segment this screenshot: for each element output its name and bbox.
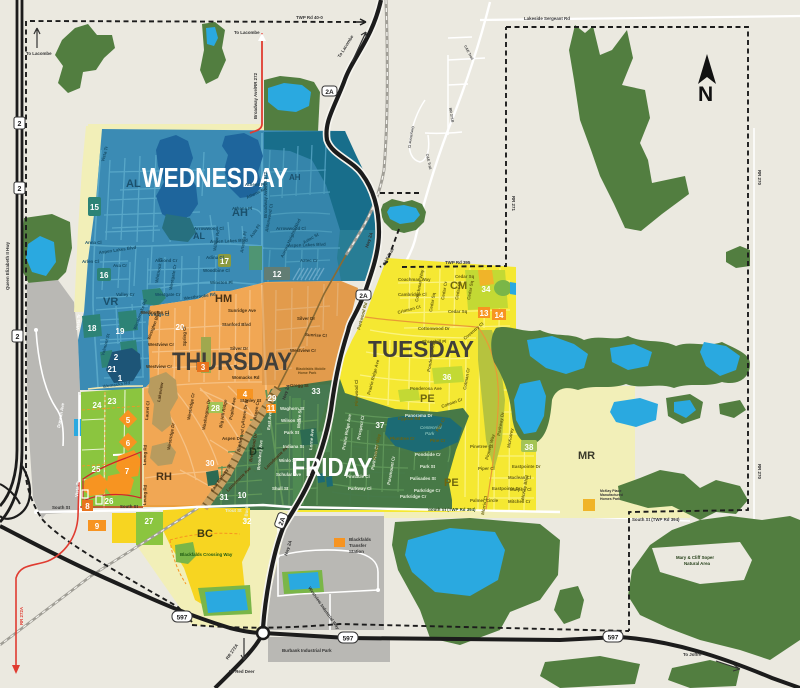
svg-text:597: 597: [177, 615, 188, 622]
svg-text:Stanford Blvd: Stanford Blvd: [222, 322, 251, 327]
svg-text:PE: PE: [444, 477, 459, 489]
svg-text:Arlen Cl: Arlen Cl: [82, 259, 99, 264]
svg-text:To Joffre: To Joffre: [683, 652, 702, 657]
svg-text:Pinetree Cl: Pinetree Cl: [470, 444, 493, 449]
svg-text:AL: AL: [126, 178, 141, 190]
svg-text:Parkridge Cr: Parkridge Cr: [400, 494, 427, 499]
svg-text:Cedar Sq: Cedar Sq: [448, 309, 468, 314]
svg-text:Burbank Industrial Park: Burbank Industrial Park: [282, 648, 332, 653]
svg-text:2: 2: [18, 121, 22, 128]
svg-text:TWP Rd 40-0: TWP Rd 40-0: [296, 15, 323, 20]
svg-text:HM: HM: [215, 293, 232, 305]
svg-text:Station: Station: [349, 549, 364, 554]
svg-text:RR 270: RR 270: [757, 170, 762, 185]
svg-text:Westview Cr: Westview Cr: [146, 364, 172, 369]
svg-text:Cyprus Rd: Cyprus Rd: [398, 416, 421, 421]
svg-text:30: 30: [206, 459, 215, 468]
svg-text:Schular Ave: Schular Ave: [276, 472, 302, 477]
svg-text:PE: PE: [420, 393, 435, 405]
svg-text:TUESDAY: TUESDAY: [368, 336, 474, 362]
svg-text:AH: AH: [289, 173, 301, 182]
svg-text:Winston Pl: Winston Pl: [210, 280, 233, 285]
svg-text:Parkridge Cr: Parkridge Cr: [414, 488, 441, 493]
svg-text:Gregg St: Gregg St: [290, 383, 309, 388]
svg-text:South St: South St: [120, 504, 139, 509]
svg-text:Queen Elizabeth II Hwy: Queen Elizabeth II Hwy: [5, 241, 10, 290]
svg-text:AL: AL: [193, 231, 205, 241]
svg-text:Westview Cr: Westview Cr: [148, 342, 174, 347]
svg-text:8: 8: [85, 502, 90, 511]
svg-text:RR 272A: RR 272A: [19, 606, 24, 625]
svg-text:Athens Pl: Athens Pl: [245, 182, 265, 187]
svg-text:Indiana St: Indiana St: [283, 444, 305, 449]
svg-text:South St (TWP Rd 394): South St (TWP Rd 394): [632, 517, 680, 522]
svg-text:Womacks Rd: Womacks Rd: [232, 375, 260, 380]
svg-text:26: 26: [105, 497, 114, 506]
svg-text:Park: Park: [425, 431, 435, 436]
svg-text:10: 10: [238, 491, 247, 500]
svg-text:Anna Cl: Anna Cl: [85, 240, 102, 245]
svg-text:South St (TWP Rd 394): South St (TWP Rd 394): [428, 507, 476, 512]
svg-text:Cambridge Cl: Cambridge Cl: [398, 292, 427, 297]
svg-text:7: 7: [125, 467, 130, 476]
svg-text:Aztec Cr: Aztec Cr: [300, 258, 318, 263]
svg-text:21: 21: [108, 365, 117, 374]
svg-text:Trout St: Trout St: [225, 508, 242, 513]
svg-text:Westview Cr: Westview Cr: [290, 348, 316, 353]
svg-text:Pinewood Cl: Pinewood Cl: [354, 380, 359, 406]
svg-text:To Red Deer: To Red Deer: [229, 669, 255, 674]
svg-text:N: N: [698, 83, 713, 106]
svg-text:To Lacombe: To Lacombe: [234, 30, 260, 35]
svg-text:Homes Park: Homes Park: [600, 497, 620, 501]
svg-text:24: 24: [93, 401, 102, 410]
svg-text:Spring Cl: Spring Cl: [182, 326, 187, 346]
svg-text:RR 271: RR 271: [511, 196, 516, 211]
svg-text:Winlo St: Winlo St: [279, 458, 297, 463]
svg-text:37: 37: [376, 421, 385, 430]
svg-text:33: 33: [312, 387, 321, 396]
svg-text:Blackfalds Crossing Way: Blackfalds Crossing Way: [180, 552, 233, 557]
svg-text:34: 34: [482, 285, 491, 294]
svg-text:28: 28: [211, 404, 220, 413]
svg-text:Broadway Ave/RR 272: Broadway Ave/RR 272: [253, 72, 258, 119]
svg-text:Westgate Cr: Westgate Cr: [155, 292, 181, 297]
svg-text:South St: South St: [52, 505, 71, 510]
svg-text:Pinnacle Cl: Pinnacle Cl: [346, 474, 370, 479]
svg-text:2: 2: [18, 186, 22, 193]
svg-text:31: 31: [220, 493, 229, 502]
svg-text:Ponderosa Ave: Ponderosa Ave: [410, 386, 442, 391]
svg-text:18: 18: [88, 324, 97, 333]
svg-text:12: 12: [273, 270, 282, 279]
svg-text:2: 2: [16, 334, 20, 341]
svg-text:Pondside Cr: Pondside Cr: [415, 452, 441, 457]
svg-text:RR 270: RR 270: [757, 464, 762, 479]
svg-text:Shull St: Shull St: [272, 486, 289, 491]
svg-text:36: 36: [443, 373, 452, 382]
svg-text:Coachman Way: Coachman Way: [398, 277, 431, 282]
svg-text:Sunridge Ave: Sunridge Ave: [228, 308, 257, 313]
svg-text:Woodbine Cl: Woodbine Cl: [203, 268, 230, 273]
svg-text:Adina Cl: Adina Cl: [206, 255, 224, 260]
svg-text:Pine Cr: Pine Cr: [430, 438, 446, 443]
svg-text:23: 23: [108, 397, 117, 406]
svg-text:Cottonwood Dr: Cottonwood Dr: [418, 326, 450, 331]
svg-text:Arrowwood Cl: Arrowwood Cl: [194, 226, 224, 231]
svg-text:Transfer: Transfer: [349, 543, 367, 548]
svg-text:Blackfalds: Blackfalds: [349, 537, 372, 542]
svg-text:Leung Rd: Leung Rd: [142, 484, 148, 505]
svg-text:Palisades St: Palisades St: [410, 476, 436, 481]
svg-text:Park St: Park St: [284, 430, 300, 435]
svg-text:Silver Dr: Silver Dr: [230, 346, 248, 351]
svg-text:14: 14: [495, 311, 504, 320]
svg-text:Valley Cr: Valley Cr: [116, 292, 135, 297]
svg-text:Home Park: Home Park: [298, 371, 316, 375]
svg-text:Mary & Cliff Soper: Mary & Cliff Soper: [676, 555, 714, 560]
svg-text:VR: VR: [103, 296, 118, 308]
svg-text:BC: BC: [197, 528, 213, 540]
svg-text:13: 13: [480, 309, 489, 318]
svg-text:Plumtree Cr: Plumtree Cr: [390, 436, 415, 441]
svg-text:2: 2: [114, 353, 119, 362]
svg-text:16: 16: [100, 271, 109, 280]
svg-text:Athens Pl: Athens Pl: [232, 206, 252, 211]
svg-text:27: 27: [145, 517, 154, 526]
svg-text:19: 19: [116, 327, 125, 336]
svg-text:597: 597: [608, 635, 619, 642]
svg-text:Ava Cr: Ava Cr: [113, 263, 127, 268]
svg-text:Cedar Sq: Cedar Sq: [455, 274, 475, 279]
svg-text:Park St: Park St: [420, 464, 436, 469]
svg-text:Silver Dr: Silver Dr: [297, 316, 315, 321]
svg-text:597: 597: [343, 636, 354, 643]
svg-text:6: 6: [126, 439, 131, 448]
svg-text:Natural Area: Natural Area: [684, 561, 711, 566]
svg-text:To Lacombe: To Lacombe: [26, 51, 52, 56]
svg-text:29: 29: [268, 394, 277, 403]
svg-text:Piper Cl: Piper Cl: [478, 466, 495, 471]
svg-text:THURSDAY: THURSDAY: [172, 348, 292, 376]
svg-text:3: 3: [201, 363, 206, 372]
svg-text:MR: MR: [578, 450, 595, 462]
svg-text:15: 15: [90, 203, 99, 212]
svg-text:2A: 2A: [325, 89, 334, 96]
svg-text:25: 25: [92, 465, 101, 474]
svg-text:2A: 2A: [359, 293, 368, 300]
svg-text:Eastpointe Dr: Eastpointe Dr: [512, 464, 541, 469]
svg-text:TWP Rd 395: TWP Rd 395: [445, 260, 471, 265]
svg-text:Leung Rd: Leung Rd: [142, 444, 148, 465]
svg-text:Lakeside Sergeant Rd: Lakeside Sergeant Rd: [524, 16, 570, 21]
svg-text:9: 9: [95, 522, 100, 531]
svg-text:5: 5: [126, 416, 131, 425]
svg-text:38: 38: [525, 443, 534, 452]
svg-text:RH: RH: [156, 471, 172, 483]
svg-text:Parkway Cl: Parkway Cl: [348, 486, 371, 491]
